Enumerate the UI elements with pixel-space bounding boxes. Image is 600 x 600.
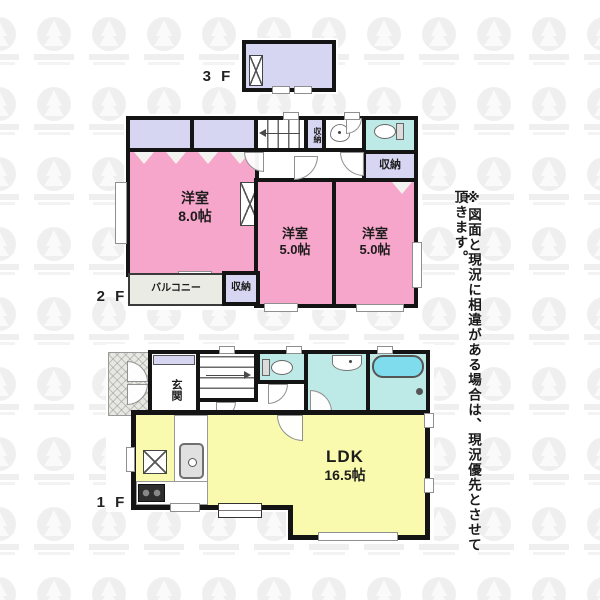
window (424, 478, 434, 493)
faucet-icon (416, 388, 423, 395)
bedroom-5-center-label: 洋室 5.0帖 (259, 226, 331, 259)
room-size: 16.5帖 (290, 467, 400, 485)
stairs-arrow-head (244, 371, 251, 379)
closet-3f (249, 55, 263, 86)
room-name: 洋室 (259, 226, 331, 242)
window (170, 503, 200, 512)
window (424, 413, 434, 428)
balcony-label: バルコニー (132, 283, 220, 296)
washbasin-drain-dot (338, 131, 341, 134)
washbasin-drain-dot (349, 360, 352, 363)
closet-2f-mid (190, 116, 258, 152)
window (412, 242, 422, 288)
wall (425, 410, 430, 540)
bay-window (115, 182, 127, 244)
window (356, 304, 404, 312)
ldk-label: LDK 16.5帖 (290, 446, 400, 485)
floor-label-2f: 2 F (92, 288, 132, 307)
window (344, 112, 360, 120)
window (294, 86, 312, 94)
bedroom-8-label: 洋室 8.0帖 (135, 190, 255, 225)
room-name: LDK (290, 446, 400, 467)
stairs-arrow (264, 133, 300, 134)
window (264, 303, 298, 312)
window (377, 346, 393, 354)
room-name: 洋室 (336, 226, 414, 242)
floor-label-1f: 1 F (92, 494, 132, 513)
room-size: 5.0帖 (336, 242, 414, 258)
storage-balcony-label: 収納 (225, 282, 257, 295)
room-size: 8.0帖 (135, 208, 255, 226)
room-size: 5.0帖 (259, 242, 331, 258)
sliding-door (218, 503, 262, 518)
toilet-tank-icon (396, 123, 404, 140)
stairs-arrow (206, 375, 244, 376)
folding-door-icon (134, 152, 154, 164)
faucet-icon (188, 458, 197, 467)
window (219, 346, 235, 354)
folding-door-icon (198, 152, 218, 164)
room-name: 洋室 (135, 190, 255, 208)
folding-door-icon (392, 182, 412, 194)
disclaimer-note: ※図面と現況に相違がある場合は、現況優先とさせて頂きます。 (458, 190, 480, 562)
bedroom-5-east-label: 洋室 5.0帖 (336, 226, 414, 259)
stove-icon (138, 484, 165, 502)
stairs-arrow-head (259, 129, 266, 137)
toilet-icon (374, 124, 396, 139)
shoe-cabinet (153, 355, 195, 365)
window (283, 112, 299, 120)
window (126, 447, 135, 472)
genkan-label: 玄関 (166, 372, 182, 408)
storage-toilet-label: 収納 (366, 159, 414, 173)
bathtub-icon (372, 355, 424, 378)
toilet-tank-icon (262, 359, 270, 376)
closet-2f-west (126, 116, 194, 152)
wall (131, 505, 293, 510)
refrigerator-space (143, 450, 167, 474)
floorplan-canvas: 3 F 洋室 8.0帖 収納 収納 洋室 5.0帖 洋室 5.0帖 (0, 0, 600, 600)
toilet-icon (271, 360, 293, 375)
window (318, 532, 398, 541)
washbasin-icon (332, 355, 362, 371)
floor-label-3f: 3 F (198, 68, 238, 87)
folding-door-icon (166, 152, 186, 164)
window (272, 86, 290, 94)
window (286, 346, 302, 354)
storage-hall-label: 収納 (308, 120, 322, 150)
